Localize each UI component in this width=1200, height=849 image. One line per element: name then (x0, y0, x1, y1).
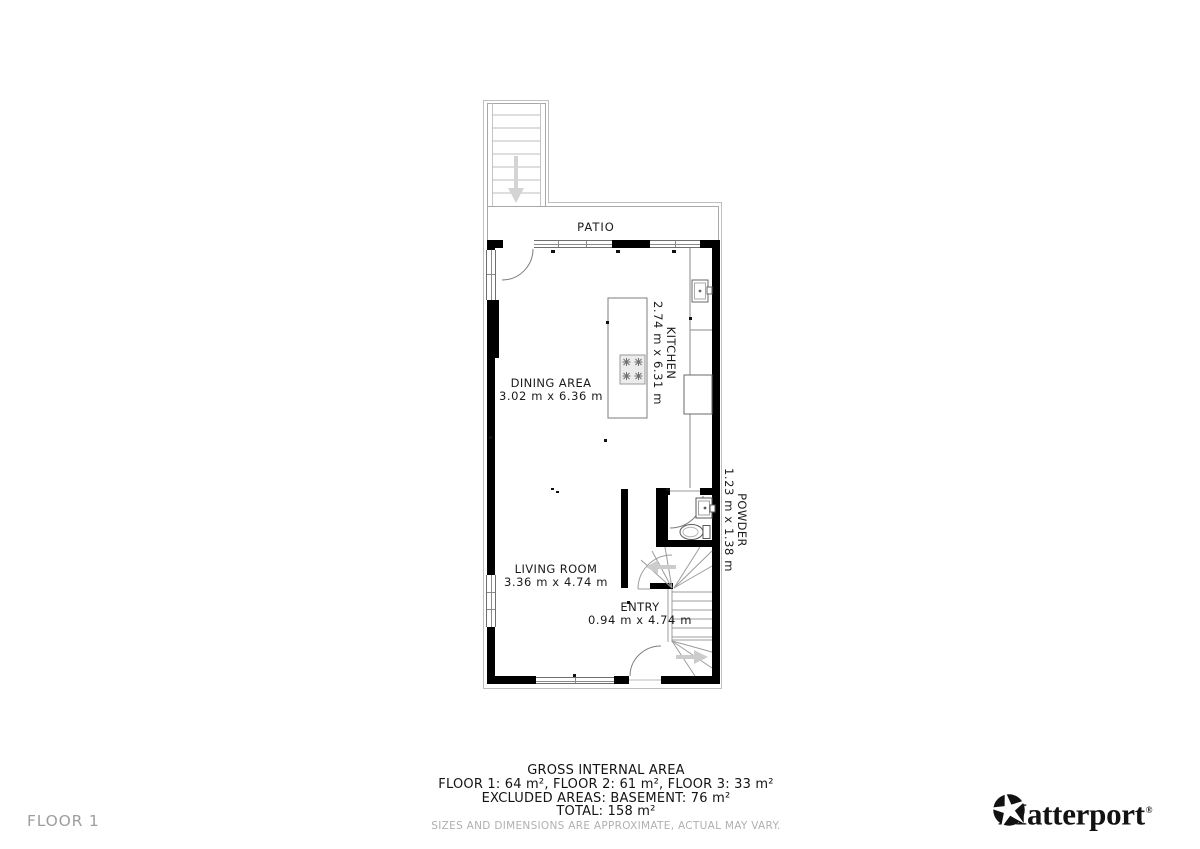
gross-area-title: GROSS INTERNAL AREA (306, 764, 906, 778)
room-dims: 0.94 m x 4.74 m (540, 614, 740, 627)
registered-mark: ® (1146, 805, 1152, 815)
room-dims: 3.36 m x 4.74 m (456, 576, 656, 589)
area-summary: GROSS INTERNAL AREA FLOOR 1: 64 m², FLOO… (306, 764, 906, 833)
room-name: KITCHEN (664, 273, 677, 433)
brand-logo: Matterport® (988, 788, 1152, 836)
fridge-icon (684, 375, 712, 414)
door-swing-arc-icon (630, 646, 661, 676)
room-label-dining: DINING AREA 3.02 m x 6.36 m (451, 377, 651, 403)
room-label-entry: ENTRY 0.94 m x 4.74 m (540, 601, 740, 627)
disclaimer-text: SIZES AND DIMENSIONS ARE APPROXIMATE, AC… (306, 820, 906, 833)
room-name: POWDER (735, 450, 748, 590)
floor-plan-drawing (0, 0, 1200, 849)
room-dims: 1.23 m x 1.38 m (722, 450, 735, 590)
room-dims: 2.74 m x 6.31 m (651, 273, 664, 433)
door-swing-arc-icon (502, 249, 533, 280)
room-label-kitchen: KITCHEN 2.74 m x 6.31 m (651, 273, 677, 433)
room-label-living: LIVING ROOM 3.36 m x 4.74 m (456, 563, 656, 589)
floor-number-label: FLOOR 1 (27, 812, 100, 830)
room-dims: 3.02 m x 6.36 m (451, 390, 651, 403)
toilet-icon (680, 525, 710, 540)
total-area-line: TOTAL: 158 m² (306, 805, 906, 819)
excluded-areas-line: EXCLUDED AREAS: BASEMENT: 76 m² (306, 792, 906, 806)
powder-sink-icon (696, 498, 715, 518)
matterport-pinwheel-icon (988, 788, 1030, 832)
room-label-powder: POWDER 1.23 m x 1.38 m (722, 450, 748, 590)
floorplan-page: PATIO DINING AREA 3.02 m x 6.36 m KITCHE… (0, 0, 1200, 849)
sink-icon (692, 280, 712, 302)
floor-areas-line: FLOOR 1: 64 m², FLOOR 2: 61 m², FLOOR 3:… (306, 778, 906, 792)
patio-label: PATIO (546, 221, 646, 234)
